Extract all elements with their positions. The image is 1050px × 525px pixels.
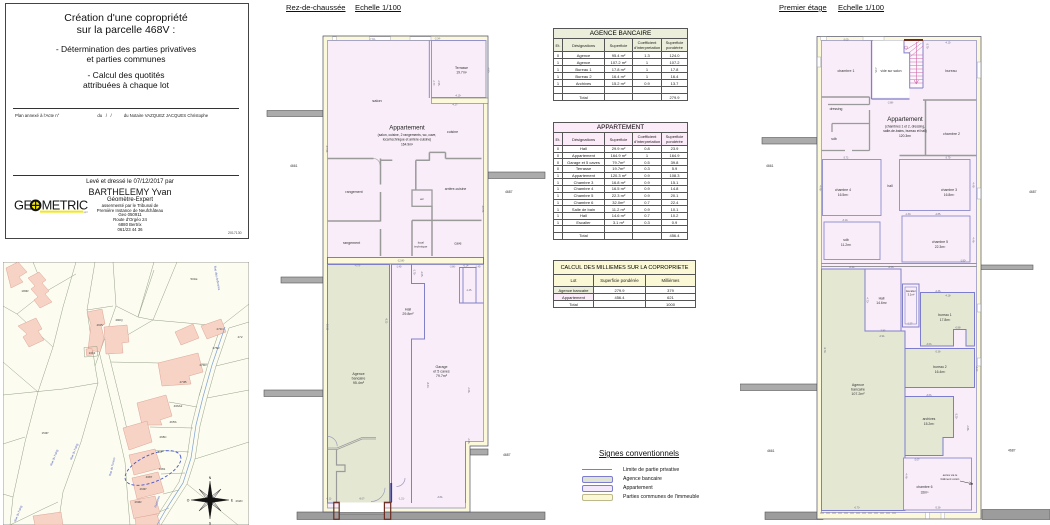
svg-text:4687: 4687	[1029, 190, 1037, 194]
svg-text:4687: 4687	[146, 475, 153, 479]
svg-text:4687: 4687	[503, 453, 511, 457]
svg-text:-4.19-: -4.19-	[455, 95, 461, 98]
svg-text:-7.94-: -7.94-	[369, 38, 375, 41]
svg-text:16.4m²: 16.4m²	[935, 370, 946, 374]
svg-text:4681: 4681	[159, 467, 166, 471]
svg-text:-4.85-: -4.85-	[935, 213, 941, 216]
svg-text:-1.45-: -1.45-	[396, 266, 402, 269]
svg-text:150P: 150P	[41, 431, 48, 435]
svg-text:local technique et arrière-cui: local technique et arrière-cuisine)	[383, 138, 432, 142]
svg-text:-3.71-: -3.71-	[843, 157, 849, 160]
svg-text:-1.45-: -1.45-	[466, 289, 472, 292]
svg-text:chambre 6: chambre 6	[916, 485, 932, 489]
svg-text:Agence: Agence	[852, 383, 864, 387]
svg-text:archives: archives	[923, 417, 936, 421]
svg-text:19.7m²: 19.7m²	[456, 71, 467, 75]
svg-text:14.6m²: 14.6m²	[876, 301, 887, 305]
svg-text:-2.07-: -2.07-	[914, 459, 920, 462]
svg-text:-1.80-: -1.80-	[960, 260, 966, 263]
svg-text:-2.94-: -2.94-	[879, 335, 885, 338]
svg-text:-6.14-: -6.14-	[463, 265, 469, 268]
svg-text:-3.86-: -3.86-	[449, 265, 455, 268]
svg-text:16.8m²: 16.8m²	[944, 193, 955, 197]
svg-text:bureau 2: bureau 2	[933, 365, 946, 369]
svg-text:-0.88-: -0.88-	[955, 327, 961, 330]
svg-text:salle-de-bains, bureau et hall: salle-de-bains, bureau et hall)	[883, 129, 926, 133]
svg-text:467: 467	[157, 450, 162, 454]
svg-text:-9.21-: -9.21-	[385, 318, 388, 324]
svg-text:476R: 476R	[212, 346, 220, 350]
svg-text:bancaire: bancaire	[352, 377, 366, 381]
svg-text:-4.77-: -4.77-	[432, 80, 435, 86]
svg-text:salon: salon	[372, 98, 382, 103]
svg-text:-3.75-: -3.75-	[945, 157, 951, 160]
svg-text:4661: 4661	[766, 164, 774, 168]
svg-text:-3.84-: -3.84-	[437, 496, 443, 499]
svg-text:4661: 4661	[767, 449, 775, 453]
svg-text:468C: 468C	[159, 435, 167, 439]
svg-text:-3.63-: -3.63-	[926, 394, 932, 397]
svg-text:-12.80-: -12.80-	[397, 260, 405, 263]
svg-text:-4.27-: -4.27-	[452, 104, 458, 107]
svg-text:3.1m²: 3.1m²	[908, 293, 915, 297]
svg-text:-8.07-: -8.07-	[359, 498, 365, 501]
svg-text:chambre 5: chambre 5	[932, 240, 948, 244]
svg-text:79.7m²: 79.7m²	[436, 374, 448, 378]
svg-text:sdb: sdb	[831, 137, 837, 141]
svg-text:bureau: bureau	[945, 69, 956, 73]
svg-text:164.9m²: 164.9m²	[401, 143, 414, 147]
svg-text:490Q: 490Q	[115, 318, 123, 322]
svg-text:-1.75-: -1.75-	[413, 269, 416, 275]
svg-text:15.2m²: 15.2m²	[924, 422, 935, 426]
svg-text:180R: 180R	[21, 289, 29, 293]
svg-text:1013: 1013	[89, 351, 96, 355]
svg-text:chambre 4: chambre 4	[835, 188, 851, 192]
svg-text:et 5 caves: et 5 caves	[433, 370, 450, 374]
svg-text:-3.10-: -3.10-	[842, 219, 848, 222]
svg-text:-3.05-: -3.05-	[843, 39, 849, 42]
svg-text:dressing: dressing	[830, 107, 843, 111]
svg-text:-4.48-: -4.48-	[972, 182, 975, 188]
svg-text:Agence: Agence	[352, 372, 364, 376]
svg-text:Escalier: Escalier	[906, 289, 916, 293]
svg-text:490V: 490V	[96, 323, 103, 327]
svg-text:-1.05-: -1.05-	[420, 271, 423, 277]
svg-text:Garage: Garage	[436, 365, 448, 369]
svg-text:4661: 4661	[290, 164, 298, 168]
svg-text:-4.79-: -4.79-	[354, 265, 360, 268]
svg-text:4687: 4687	[505, 190, 513, 194]
svg-text:-0.41-: -0.41-	[849, 266, 855, 269]
svg-text:technique: technique	[414, 245, 427, 249]
svg-text:-4.55-: -4.55-	[874, 67, 877, 73]
svg-text:11.2m²: 11.2m²	[841, 243, 852, 247]
svg-text:-12.25-: -12.25-	[481, 205, 484, 213]
svg-text:469R: 469R	[134, 500, 142, 504]
svg-text:32m²: 32m²	[921, 491, 930, 495]
svg-text:chambre 2: chambre 2	[943, 132, 960, 136]
svg-text:22.3m²: 22.3m²	[935, 245, 946, 249]
svg-text:-4.46-: -4.46-	[972, 237, 975, 243]
svg-text:Appartement: Appartement	[887, 116, 923, 123]
svg-text:hall: hall	[887, 184, 893, 188]
svg-text:-4.18-: -4.18-	[945, 295, 951, 298]
svg-text:472: 472	[237, 335, 242, 339]
svg-text:-2.36-: -2.36-	[935, 290, 941, 293]
svg-text:-10.13-: -10.13-	[326, 323, 329, 331]
svg-text:-1.31-: -1.31-	[398, 498, 404, 501]
svg-text:-4.46-: -4.46-	[905, 473, 908, 479]
svg-text:473B: 473B	[179, 380, 186, 384]
svg-text:-3.07-: -3.07-	[975, 366, 978, 372]
svg-text:-5.36-: -5.36-	[935, 351, 941, 354]
svg-text:bâtiment voisin: bâtiment voisin	[941, 477, 960, 481]
svg-text:466A2: 466A2	[174, 404, 183, 408]
svg-text:-4.15-: -4.15-	[945, 42, 951, 45]
svg-text:95.4m²: 95.4m²	[353, 381, 365, 385]
svg-text:465S: 465S	[169, 420, 176, 424]
svg-text:Hall: Hall	[879, 297, 885, 301]
svg-text:rangement: rangement	[343, 241, 360, 245]
svg-text:474D: 474D	[199, 363, 207, 367]
svg-text:chambre 3: chambre 3	[941, 188, 957, 192]
svg-text:-4.06-: -4.06-	[467, 387, 470, 393]
svg-text:-1.27-: -1.27-	[907, 323, 913, 326]
svg-text:469P: 469P	[139, 487, 146, 491]
svg-text:-3.25-: -3.25-	[955, 413, 958, 419]
svg-text:arrière-cuisine: arrière-cuisine	[445, 187, 467, 191]
svg-text:-5.36-: -5.36-	[935, 507, 941, 510]
svg-text:-1.45-: -1.45-	[475, 266, 481, 269]
svg-text:120.3m²: 120.3m²	[899, 134, 912, 138]
svg-text:462D: 462D	[235, 499, 243, 503]
svg-text:-2.56-: -2.56-	[888, 266, 894, 269]
svg-text:17.8m²: 17.8m²	[940, 318, 951, 322]
svg-text:-2.88-: -2.88-	[887, 102, 893, 105]
svg-text:cave: cave	[454, 242, 461, 246]
svg-text:-4.26-: -4.26-	[467, 438, 470, 444]
svg-text:-4.86-: -4.86-	[966, 425, 969, 431]
svg-text:-4.70-: -4.70-	[866, 297, 869, 303]
svg-text:-4.46-: -4.46-	[819, 185, 822, 191]
svg-text:Appartement: Appartement	[389, 125, 425, 132]
svg-text:471N: 471N	[216, 327, 223, 331]
svg-text:16.5m²: 16.5m²	[838, 193, 849, 197]
svg-text:-8.30-: -8.30-	[426, 382, 429, 388]
svg-text:GE: GE	[14, 198, 32, 213]
svg-text:rangement: rangement	[345, 190, 362, 194]
svg-text:501E: 501E	[190, 277, 197, 281]
svg-text:-6.70-: -6.70-	[854, 507, 860, 510]
svg-text:4687: 4687	[1008, 449, 1016, 453]
svg-text:-4.55-: -4.55-	[437, 80, 440, 86]
svg-text:-9.79-: -9.79-	[823, 347, 826, 353]
svg-text:Hall: Hall	[405, 308, 411, 312]
svg-text:-2.83-: -2.83-	[880, 330, 886, 333]
svg-text:bureau 1: bureau 1	[938, 313, 951, 317]
svg-text:chambre 1: chambre 1	[838, 69, 855, 73]
svg-text:-4.50-: -4.50-	[487, 67, 490, 73]
svg-text:-2.34-: -2.34-	[434, 38, 440, 41]
svg-text:(salon, cuisine, 2 rangements,: (salon, cuisine, 2 rangements, wc, cave,	[378, 133, 437, 137]
svg-text:METRIC: METRIC	[42, 198, 88, 213]
svg-text:-6.11-: -6.11-	[326, 498, 332, 501]
svg-text:-17.03-: -17.03-	[325, 145, 328, 153]
svg-text:29.8m²: 29.8m²	[402, 312, 414, 316]
svg-text:vide sur salon: vide sur salon	[881, 69, 902, 73]
svg-text:O: O	[187, 499, 190, 503]
svg-text:-3.75-: -3.75-	[926, 43, 929, 49]
svg-text:-3.63-: -3.63-	[926, 343, 932, 346]
svg-text:cuisine: cuisine	[447, 130, 458, 134]
svg-text:bancaire: bancaire	[851, 388, 865, 392]
svg-text:(chambres 1 et 2, dressing,: (chambres 1 et 2, dressing,	[885, 125, 925, 129]
svg-text:wc: wc	[420, 197, 424, 201]
svg-text:107.2m²: 107.2m²	[851, 392, 865, 396]
svg-text:Terrasse: Terrasse	[455, 66, 468, 70]
svg-text:sdb: sdb	[843, 238, 849, 242]
svg-text:sprl: sprl	[84, 211, 88, 214]
svg-text:-1.30-: -1.30-	[905, 213, 911, 216]
